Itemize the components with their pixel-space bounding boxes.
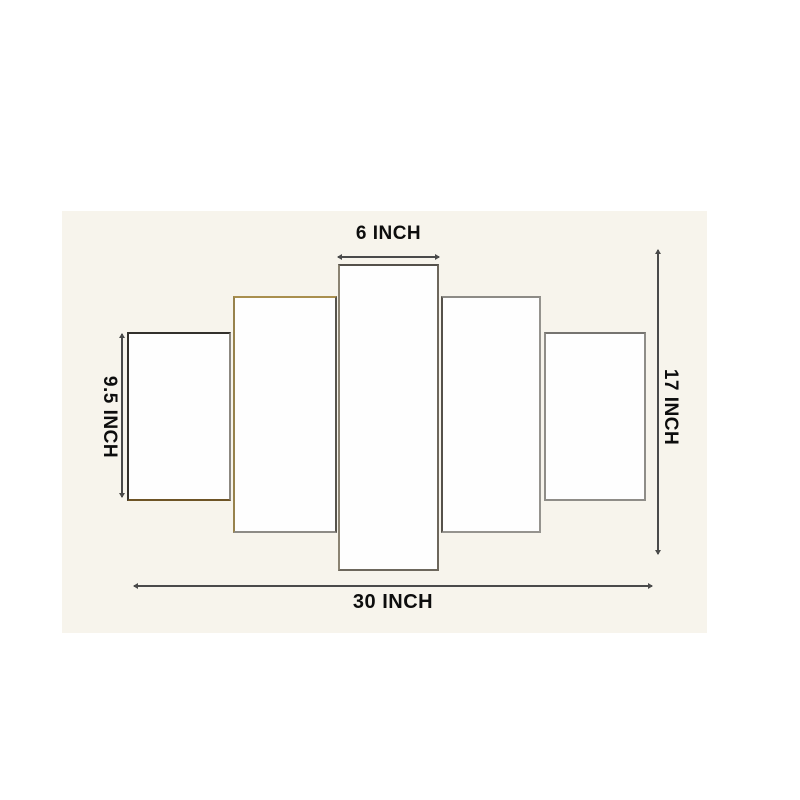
canvas-panel-1 [127, 332, 231, 501]
total-height-label: 17 INCH [660, 362, 680, 452]
canvas-panel-2 [233, 296, 337, 533]
dimension-line-bottom [134, 585, 652, 587]
side-panel-height-label: 9.5 INCH [99, 372, 119, 462]
canvas-panel-4 [441, 296, 541, 533]
arrow-down-icon [119, 493, 125, 498]
arrow-left-icon [337, 254, 342, 260]
arrow-right-icon [435, 254, 440, 260]
dimension-line-left [121, 334, 123, 497]
canvas-panel-3-center [338, 264, 439, 571]
canvas-panel-5 [544, 332, 646, 501]
total-width-label: 30 INCH [134, 592, 652, 612]
arrow-up-icon [655, 249, 661, 254]
center-panel-width-label: 6 INCH [338, 224, 439, 244]
product-dimension-image: 6 INCH 9.5 INCH 17 INCH 30 INCH [0, 0, 800, 800]
arrow-down-icon [655, 550, 661, 555]
arrow-up-icon [119, 333, 125, 338]
arrow-left-icon [133, 583, 138, 589]
arrow-right-icon [648, 583, 653, 589]
dimension-line-right [657, 250, 659, 554]
photo-background: 6 INCH 9.5 INCH 17 INCH 30 INCH [62, 211, 707, 633]
dimension-line-top [338, 256, 439, 258]
